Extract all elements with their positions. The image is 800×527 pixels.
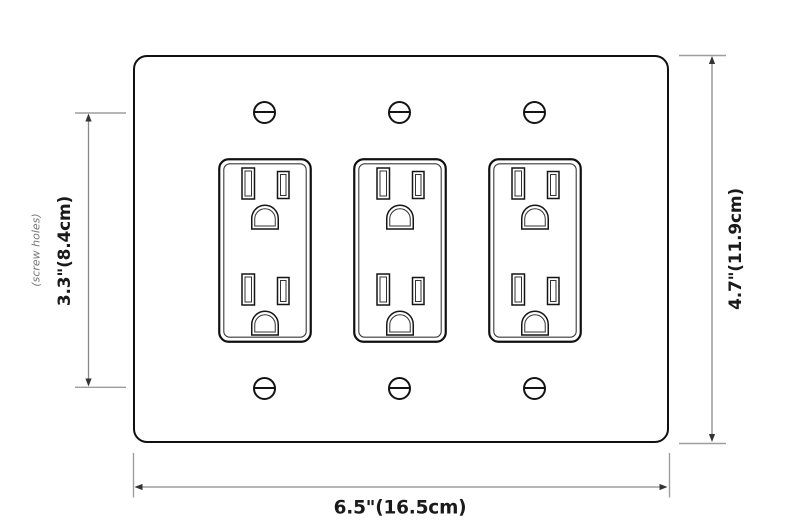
outlet-receptacle-icon <box>218 158 312 343</box>
wall-plate-dimension-diagram: (screw holes) 3.3"(8.4cm) 4.7"(11.9cm) 6… <box>0 0 800 527</box>
screw-icon <box>253 377 276 400</box>
outlet-receptacle-icon <box>353 158 447 343</box>
screw-spacing-dimension-label: 3.3"(8.4cm) <box>55 196 75 306</box>
screw-icon <box>523 377 546 400</box>
screw-holes-note-label: (screw holes) <box>30 213 43 286</box>
plate-height-dimension-label: 4.7"(11.9cm) <box>726 188 746 310</box>
outlet-receptacle-icon <box>488 158 582 343</box>
screw-icon <box>388 377 411 400</box>
screw-icon <box>253 101 276 124</box>
screw-icon <box>523 101 546 124</box>
plate-width-dimension-label: 6.5"(16.5cm) <box>334 498 467 519</box>
screw-icon <box>388 101 411 124</box>
